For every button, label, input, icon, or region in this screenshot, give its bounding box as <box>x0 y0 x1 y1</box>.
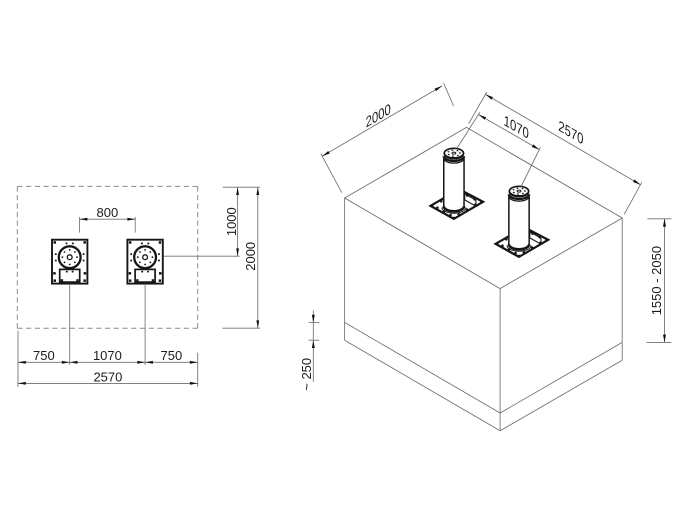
svg-text:1000: 1000 <box>224 207 239 236</box>
svg-text:2000: 2000 <box>243 242 258 271</box>
svg-text:1070: 1070 <box>93 348 122 363</box>
svg-text:750: 750 <box>161 348 183 363</box>
svg-text:~ 250: ~ 250 <box>299 358 314 391</box>
svg-text:2570: 2570 <box>93 369 122 384</box>
svg-text:1550 - 2050: 1550 - 2050 <box>649 246 664 315</box>
svg-text:800: 800 <box>97 205 119 220</box>
svg-text:750: 750 <box>33 348 55 363</box>
